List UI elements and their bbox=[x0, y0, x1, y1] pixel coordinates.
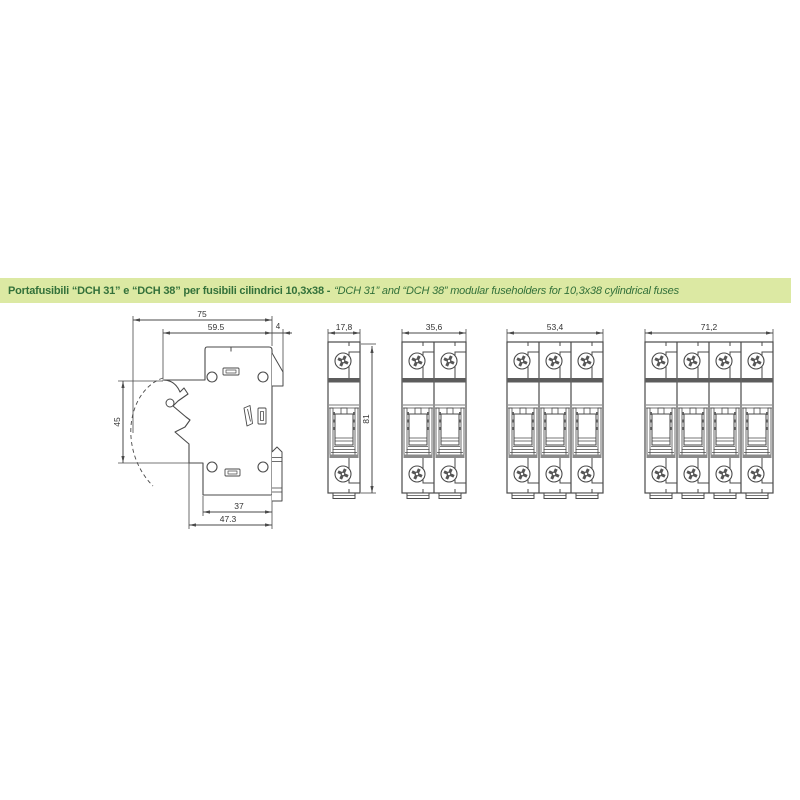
section-header-bar: Portafusibili “DCH 31” e “DCH 38” per fu… bbox=[0, 278, 791, 303]
front-view-2p-linework: 35,6 bbox=[402, 322, 466, 499]
side-view-linework: 75 59.5 4 45 37 47.3 bbox=[112, 309, 292, 529]
dim-total-width: 75 bbox=[197, 309, 207, 319]
side-view-body bbox=[163, 347, 272, 495]
door-swing-arc bbox=[131, 378, 163, 486]
dimension-label: 17,8 bbox=[336, 322, 353, 332]
front-view-1p-linework: 17,881 bbox=[328, 322, 376, 499]
front-view-4p-linework: 71,2 bbox=[645, 322, 773, 499]
din-rail-hook bbox=[272, 353, 283, 386]
dim-rail-lip: 4 bbox=[276, 322, 281, 331]
front-view-3p-linework: 53,4 bbox=[507, 322, 603, 499]
dim-upper-width: 59.5 bbox=[208, 322, 225, 332]
dimension-label: 53,4 bbox=[547, 322, 564, 332]
din-rail-clip bbox=[272, 447, 282, 501]
catalog-page: Portafusibili “DCH 31” e “DCH 38” per fu… bbox=[0, 0, 800, 800]
dim-door-swing-height: 45 bbox=[112, 417, 122, 427]
section-title-english: “DCH 31” and “DCH 38” modular fuseholder… bbox=[334, 285, 679, 297]
dimension-label: 81 bbox=[361, 414, 371, 424]
dimension-label: 71,2 bbox=[701, 322, 718, 332]
hinge-pin bbox=[166, 399, 174, 407]
section-title-italian: Portafusibili “DCH 31” e “DCH 38” per fu… bbox=[8, 285, 330, 297]
front-view-4-pole: 71,2 bbox=[632, 320, 786, 510]
front-view-3-pole: 53,4 bbox=[494, 320, 616, 510]
side-view-drawing: 75 59.5 4 45 37 47.3 bbox=[100, 305, 300, 540]
dim-base-width: 37 bbox=[234, 501, 244, 511]
dim-base-total-width: 47.3 bbox=[220, 514, 237, 524]
front-view-2-pole: 35,6 bbox=[389, 320, 479, 510]
dimension-label: 35,6 bbox=[426, 322, 443, 332]
front-view-1-pole: 17,881 bbox=[315, 320, 390, 510]
